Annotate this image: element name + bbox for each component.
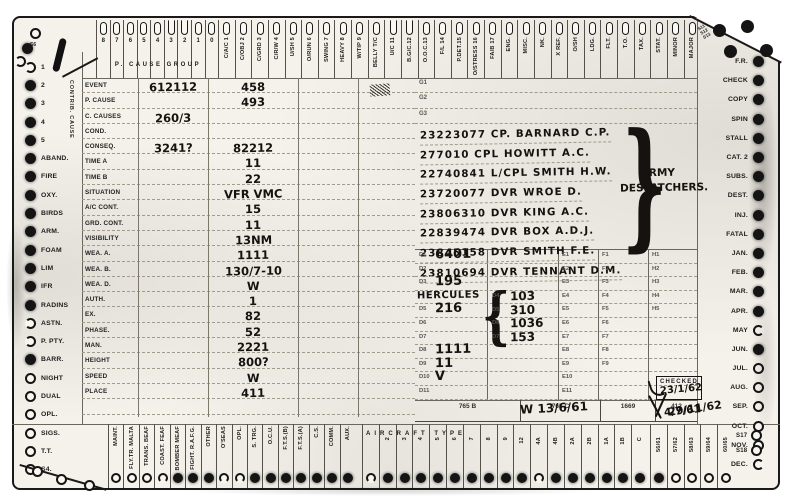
bottom-punch-slot: 5 [429,424,446,488]
crew-name: 22839474 DVR BOX A.D.J. [420,225,595,244]
bottom-punch-slot: OPL. [232,424,247,488]
right-punch-row: FEB. [698,263,776,282]
bottom-punch-slot: OTHER [201,424,216,488]
top-slot-label: B.G/C.12 [407,37,413,62]
punch-hole [142,473,152,483]
punch-hole [25,153,36,164]
right-row-label: DEST. [728,192,748,199]
top-punch-slot: T.O. [617,20,634,78]
left-row-label: ASTN. [41,320,62,327]
right-punch-row: JAN. [698,244,776,263]
punch-slot-hole [606,22,613,35]
h-label: H3 [652,277,692,291]
left-punch-row: P. PTY. [14,332,82,350]
right-punch-row: SUBS. [698,167,776,186]
punch-hole [25,373,36,384]
main-grid-row: WEA. A. 1111 [82,246,415,261]
punch-hole [753,363,764,374]
right-punch-row: DEST. [698,186,776,205]
main-grid-row: VISIBILITY 13NM [82,231,415,246]
left-row-label: P. PTY. [41,338,64,345]
top-slot-label: O/SH [573,37,579,51]
top-slot-label: MAJOR [689,37,695,58]
crew-name: 23720077 DVR WROE D. [420,186,582,205]
right-row-label: FEB. [732,269,748,276]
top-slot-label: C/OBJ 2 [240,37,246,60]
top-slot-label: O.O.C.13 [423,37,429,62]
punch-slot-hole [572,22,579,35]
type-slot-label: 7 [469,437,475,440]
punch-hole [25,336,36,347]
army-despatchers-note: ARMY DESPATCHERS. [620,165,697,196]
type-slot-label: 5 [435,437,441,440]
punch-hole [724,45,737,58]
e-label: E5 [562,304,602,318]
handwritten-value: 216 [435,301,462,316]
punch-hole [753,382,764,393]
e-label: E9 [562,359,602,373]
handwritten-value: 3241? [154,142,193,156]
f-label: F4 [602,291,642,305]
top-slot-label: MINOR [673,37,679,57]
left-punch-row: OXY. [14,186,82,204]
punch-hole [219,473,229,483]
punch-slot-hole [556,22,563,35]
right-row-label: MAR. [730,288,748,295]
bottom-punch-slot: 1B [614,424,631,488]
right-punch-row: INJ. [698,206,776,225]
left-row-label: DUAL [41,393,61,400]
right-row-label: APR. [731,308,748,315]
right-row-label: JUN. [732,346,748,353]
main-grid-row: C. CAUSES 260/3 [82,109,415,124]
bottom-slot-label: O'SEAS [221,426,227,448]
right-punch-row: CHECK [698,71,776,90]
punch-slot-hole [306,22,313,35]
bottom-slot-label: AUX. [345,426,351,440]
top-digit-slot: 4 [150,20,164,78]
punch-slot-hole [100,22,107,35]
punch-hole [25,446,36,457]
punch-hole [551,473,561,483]
handwritten-value: VFR VMC [224,188,283,202]
type-slot-label: 3 [402,437,408,440]
top-slot-label: C/R/W 4 [274,37,280,60]
type-slot-label: 4A [536,437,542,445]
main-grid-row: SITUATION VFR VMC [82,185,415,200]
punch-hole [56,474,67,485]
punch-hole [266,473,276,483]
punch-slot-hole [168,20,175,35]
f-label: F1 [602,250,642,264]
punch-hole [753,459,764,470]
bottom-slot-label: TRANS. BEAF [144,426,150,466]
bottom-slot-label: COMM. [329,426,335,446]
top-punch-slot: U/C 11 [384,20,401,78]
punch-hole [235,473,245,483]
punch-slot-hole [181,20,188,35]
punch-hole [534,473,544,483]
punch-hole [25,409,36,420]
d-row-label: D8 [419,347,426,353]
top-punch-slot: TAX. [634,20,651,78]
series-row: S17 [736,428,762,443]
top-digit-slot: 7 [110,20,124,78]
right-row-label: SPIN [731,116,748,123]
bottom-slot-label: MAINT. [113,426,119,446]
cause-group-label: P. CAUSE GROUP [98,62,218,68]
punch-hole [22,43,33,54]
d-row-label: D3 [419,279,426,285]
handwritten-value: 15 [245,203,261,216]
top-slot-label: W/TIP 9 [357,37,363,59]
left-punch-row: BIRDS [14,204,82,222]
top-punch-slot: C/GRD 3 [251,20,268,78]
top-slot-label: LDG. [590,37,596,51]
punch-hole [296,473,306,483]
punch-slot-hole [672,22,679,35]
punch-slot-hole [473,22,480,35]
e-label: E4 [562,291,602,305]
punch-hole [433,473,443,483]
bottom-punch-slot: 7 [463,424,480,488]
h-label: H1 [652,250,692,264]
punch-hole [25,208,36,219]
punch-hole [25,117,36,128]
handwritten-value: V [435,369,445,384]
right-punch-row: AUG. [698,378,776,397]
punch-hole [15,56,26,67]
left-row-label: 2 [41,82,45,89]
top-punch-slot: SWING 7 [318,20,335,78]
bottom-punch-slot: 60/65 [717,424,734,488]
digit-slot-label: 8 [102,38,105,44]
punch-hole [25,226,36,237]
right-punch-row: JUN. [698,340,776,359]
f-label: F6 [602,318,642,332]
top-punch-slot: FA/B 17 [484,20,501,78]
left-row-label: 4 [41,119,45,126]
punch-hole [204,473,214,483]
punch-hole [671,473,681,483]
d-row-label: D11 [419,388,429,394]
punch-hole [450,473,460,483]
series-label: S17 [736,433,747,439]
left-punch-row: FOAM [14,241,82,259]
right-row-label: SEP. [733,403,748,410]
punch-hole [517,473,527,483]
handwritten-value: 612112 [149,81,197,95]
punch-hole [753,56,764,67]
top-slot-label: T.O. [623,37,629,48]
f-label: F8 [602,345,642,359]
handwritten-value: 493 [241,96,265,109]
top-punch-slot: X REF. [551,20,568,78]
main-grid-row: GRD. CONT. 11 [82,216,415,231]
d-sub-row: D7 153 [492,332,556,346]
d-row-label: D6 [419,320,426,326]
top-slot-label: TAX. [639,37,645,50]
bottom-slot-label: O.C.U. [268,426,274,444]
punch-slot-hole [373,22,380,35]
d-row-label: D7 [419,334,426,340]
bottom-punch-slot: 6 [446,424,463,488]
right-row-label: COPY [728,96,748,103]
main-grid-row: P. CAUSE 493 [82,93,415,108]
punch-hole [585,473,595,483]
d-row-label: D10 [419,374,430,380]
handwritten-value: 800? [238,356,269,370]
top-slot-label: BELLY T/C [373,37,379,67]
empty-cell [358,399,415,417]
top-punch-slot: C/A/C 1 [218,20,235,78]
right-punch-row: MAR. [698,282,776,301]
top-punch-slot: W/TIP 9 [351,20,368,78]
top-punch-slot: F/L 14 [434,20,451,78]
type-slot-label: 6 [452,437,458,440]
e-label: E2 [562,264,602,278]
top-slot-label: F/L 14 [440,37,446,54]
left-row-label: FOAM [41,247,62,254]
bottom-edge-year-slots: 56/61 57/62 58/63 59/64 60/65 [650,424,734,488]
bottom-slot-label: COAST. FEAF [160,426,166,465]
bottom-punch-slot: COMM. [324,424,339,488]
left-row-label: ARM. [41,228,59,235]
left-row-label: RADINS [41,302,68,309]
top-punch-slot: ENG. [501,20,518,78]
bottom-punch-slot: O.C.U. [262,424,277,488]
right-punch-row: MAY [698,321,776,340]
left-row-label: FIRE [41,173,57,180]
punch-slot-hole [456,22,463,35]
top-punch-slot: HEAVY 8 [334,20,351,78]
punch-slot-hole [523,22,530,35]
crew-name: 277010 CPL HOWITT A.C. [420,146,590,165]
handwritten-value: 1 [249,295,257,308]
handwritten-value: 52 [245,326,261,339]
left-punch-row: IFR [14,278,82,296]
punch-slot-hole [223,22,230,35]
top-punch-slot: MISC. [517,20,534,78]
punch-hole [25,354,36,365]
left-punch-row: NIGHT [14,369,82,387]
bottom-punch-slot: 8 [480,424,497,488]
punch-hole [753,248,764,259]
year-slot-label: 60/65 [723,437,729,452]
f-label: F7 [602,332,642,346]
punch-slot-hole [656,22,663,35]
top-punch-slot: NK. [534,20,551,78]
bottom-slot-label: F.T.S.(B) [283,426,289,450]
bottom-punch-slot: 1A [598,424,615,488]
punch-hole [753,306,764,317]
right-row-label: AUG. [730,384,748,391]
type-slot-label: 1A [604,437,610,445]
right-punch-row: STALL [698,129,776,148]
bottom-punch-slot: TRANS. BEAF [139,424,154,488]
left-row-label: ABAND. [41,155,69,162]
punch-hole [25,428,36,439]
bottom-punch-slot: C.S. [309,424,324,488]
h-label-column: H1H2H3H4H5 [652,250,692,318]
handwritten-value: 130/7-10 [225,264,282,278]
bottom-punch-slot: MAINT. [108,424,123,488]
e-label: E3 [562,277,602,291]
punch-hole [188,473,198,483]
right-row-label: MAY [733,327,748,334]
left-punch-row: ABAND. [14,149,82,167]
left-punch-row: ARM. [14,223,82,241]
d-row-label: D1 [419,252,426,258]
handwritten-value: 6401 [435,247,471,263]
punch-hole [383,473,393,483]
right-punch-row: CAT. 2 [698,148,776,167]
punch-hole [25,98,36,109]
bottom-punch-slot: FLY.TR. MALTA [123,424,138,488]
contrib-cause-label: CONTRIB. CAUSE [68,80,74,139]
f-label-column: F1F2F3F4F5F6F7F8F9 [602,250,642,372]
top-punch-slot: P.DET.15 [451,20,468,78]
handwritten-value: 103 [510,289,535,303]
top-slot-label: MISC. [523,37,529,54]
d-sub-rows: D4 103 D5 310 D6 1036 D7 153 [492,291,556,345]
punch-slot-hole [154,22,161,35]
digit-slot-label: 0 [210,38,213,44]
punch-hole [281,473,291,483]
form-number-cell: 1669 [600,400,655,421]
bottom-punch-slot: S. TRG. [247,424,262,488]
right-row-label: FATAL [726,231,748,238]
punch-slot-hole [127,22,134,35]
handwritten-value: 153 [510,330,535,344]
punch-slot-hole [340,22,347,35]
top-digit-slot: 0 [205,20,219,78]
punch-slot-hole [240,22,247,35]
d-row-label: D9 [419,361,426,367]
left-punch-row: LIM [14,259,82,277]
type-slot-label: 8 [486,437,492,440]
top-punch-slot: O/SH [567,20,584,78]
punch-hole [618,473,628,483]
punch-slot-hole [423,22,430,35]
army-note-line1: ARMY [620,165,696,181]
main-grid-row: TIME B 22 [82,170,415,185]
type-slot-label: 2 [385,437,391,440]
handwritten-value: 1111 [237,249,269,263]
handwritten-value: 82212 [233,142,273,156]
punch-slot-hole [689,22,696,35]
row-label [82,399,138,417]
year-slot-label: 57/62 [673,437,679,452]
d-sub-label: D5 [492,307,499,313]
top-punch-slot: U/SH 5 [285,20,302,78]
punch-hole [751,430,762,441]
main-grid-row: MAN. 2221 [82,338,415,353]
crew-name: 23806310 DVR KING A.C. [420,205,589,224]
main-grid-row: TIME A 11 [82,154,415,169]
punch-hole [751,445,762,456]
punch-hole [741,20,754,33]
bottom-punch-slot: F.T.S.(A) [293,424,308,488]
d-row: D6 [415,318,697,332]
left-row-label: 1 [41,64,45,71]
punch-slot-hole [113,22,120,35]
punch-hole [84,480,95,491]
f-label: F2 [602,264,642,278]
bottom-right-series: S17 S18 [736,428,762,458]
right-punch-row: COPY [698,90,776,109]
handwritten-value: 1036 [510,316,544,331]
empty-cell [298,399,358,417]
main-grid-row: EX. 82 [82,307,415,322]
handwritten-value: 11 [245,219,261,232]
punch-hole [753,75,764,86]
bottom-punch-slot: 3 [396,424,413,488]
bottom-punch-slot: 2B [581,424,598,488]
e-label: E11 [562,386,602,400]
punch-hole [753,171,764,182]
bottom-punch-slot: O'SEAS [216,424,231,488]
d-row: D9 11 [415,359,697,373]
punch-hole [654,473,664,483]
year-slot-label: 56/61 [656,437,662,452]
punch-hole [753,401,764,412]
punch-hole [416,473,426,483]
d-sub-label: D7 [492,334,499,340]
left-row-label: OPL. [41,411,58,418]
year-slot-label: 59/64 [706,437,712,452]
e-label: E10 [562,372,602,386]
top-punch-slot: O/STRESS 16 [467,20,484,78]
d-row: D8 1111 [415,345,697,359]
punch-hole [366,473,376,483]
bottom-slot-label: S. TRG. [252,426,258,448]
h-label: H2 [652,264,692,278]
top-slot-label: O/STRESS 16 [473,37,479,75]
bottom-punch-slot: FIGHT. R.A.F.G. [185,424,200,488]
handwritten-value: 458 [241,81,265,94]
handwritten-value: 82 [245,310,261,323]
top-edge-digit-slots: 8 7 6 5 4 3 [96,20,218,78]
punch-slot-hole [140,22,147,35]
d-sub-label: D4 [492,293,499,299]
punch-hole [721,473,731,483]
punch-slot-hole [290,22,297,35]
right-punch-row: APR. [698,301,776,320]
main-grid-row: COND. [82,124,415,139]
bottom-slot-label: OTHER [206,426,212,447]
top-slot-label: U/C 11 [390,37,396,55]
punch-hole [400,473,410,483]
punch-hole [753,210,764,221]
digit-slot-label: 1 [197,38,200,44]
right-row-label: SUBS. [726,173,748,180]
punch-hole [25,190,36,201]
top-digit-slot: 8 [96,20,110,78]
top-slot-label: FA/B 17 [490,37,496,59]
top-digit-slot: 3 [164,20,178,78]
punch-slot-hole [208,22,215,35]
left-row-label: LIM [41,265,53,272]
left-row-label: OXY. [41,192,57,199]
bottom-punch-slot: 57/62 [667,424,684,488]
punch-hole [250,473,260,483]
punch-slot-hole [390,20,397,35]
punch-hole [704,473,714,483]
top-punch-slot: O/RUN 6 [301,20,318,78]
bottom-punch-slot [362,424,379,488]
left-punch-row: ASTN. [14,314,82,332]
